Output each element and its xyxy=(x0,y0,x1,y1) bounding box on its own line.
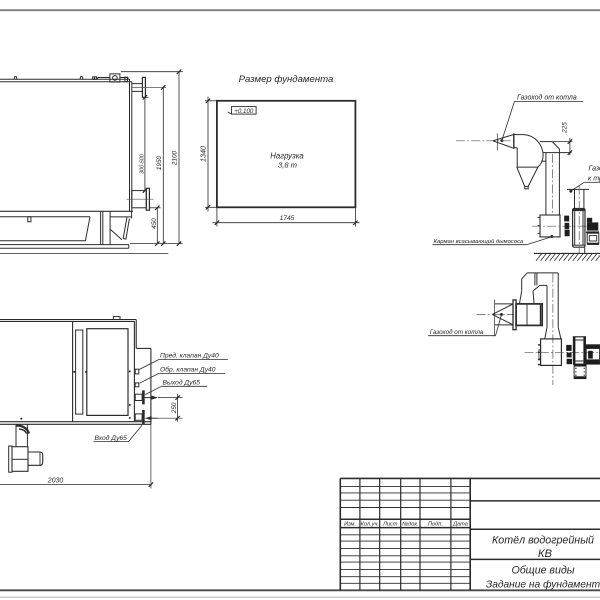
svg-text:Задание на фундамент: Задание на фундамент xyxy=(486,578,600,590)
svg-text:2100: 2100 xyxy=(172,150,179,166)
svg-text:Общие виды: Общие виды xyxy=(511,565,574,577)
svg-text:Карман всасывающий дымососа: Карман всасывающий дымососа xyxy=(434,238,525,245)
svg-text:Изм.: Изм. xyxy=(344,522,356,528)
svg-text:250: 250 xyxy=(171,402,178,414)
svg-text:Подп.: Подп. xyxy=(428,522,443,528)
svg-text:2030: 2030 xyxy=(47,478,64,485)
svg-text:Газоход от котла: Газоход от котла xyxy=(430,328,484,336)
svg-text:1745: 1745 xyxy=(280,215,295,222)
svg-text:Котёл водогрейный: Котёл водогрейный xyxy=(492,535,594,547)
svg-text:Газоход от котла: Газоход от котла xyxy=(517,94,577,102)
svg-text:450: 450 xyxy=(151,218,158,229)
svg-text:1340: 1340 xyxy=(199,146,208,162)
svg-text:Дата: Дата xyxy=(452,522,468,528)
svg-text:Нагрузка: Нагрузка xyxy=(270,151,304,160)
svg-text:Обр. клапан Ду40: Обр. клапан Ду40 xyxy=(160,365,216,373)
svg-text:Вход Ду65: Вход Ду65 xyxy=(95,434,128,442)
svg-text:Выход Ду65: Выход Ду65 xyxy=(163,378,201,386)
svg-text:+0,100: +0,100 xyxy=(234,108,254,115)
svg-text:к трубе: к трубе xyxy=(588,174,600,182)
svg-text:№док.: №док. xyxy=(402,522,418,528)
svg-text:Газоход: Газоход xyxy=(589,165,600,173)
svg-text:КВ: КВ xyxy=(538,548,553,560)
svg-text:300-500: 300-500 xyxy=(139,154,145,174)
svg-text:Размер фундамента: Размер фундамента xyxy=(239,74,334,85)
svg-text:Кол.уч.: Кол.уч. xyxy=(361,522,379,528)
svg-text:Пред. клапан Ду40: Пред. клапан Ду40 xyxy=(160,351,219,359)
svg-text:1950: 1950 xyxy=(156,155,163,170)
svg-text:225: 225 xyxy=(561,122,568,134)
svg-text:3,8 т: 3,8 т xyxy=(278,160,297,169)
svg-text:Лист: Лист xyxy=(382,522,398,528)
